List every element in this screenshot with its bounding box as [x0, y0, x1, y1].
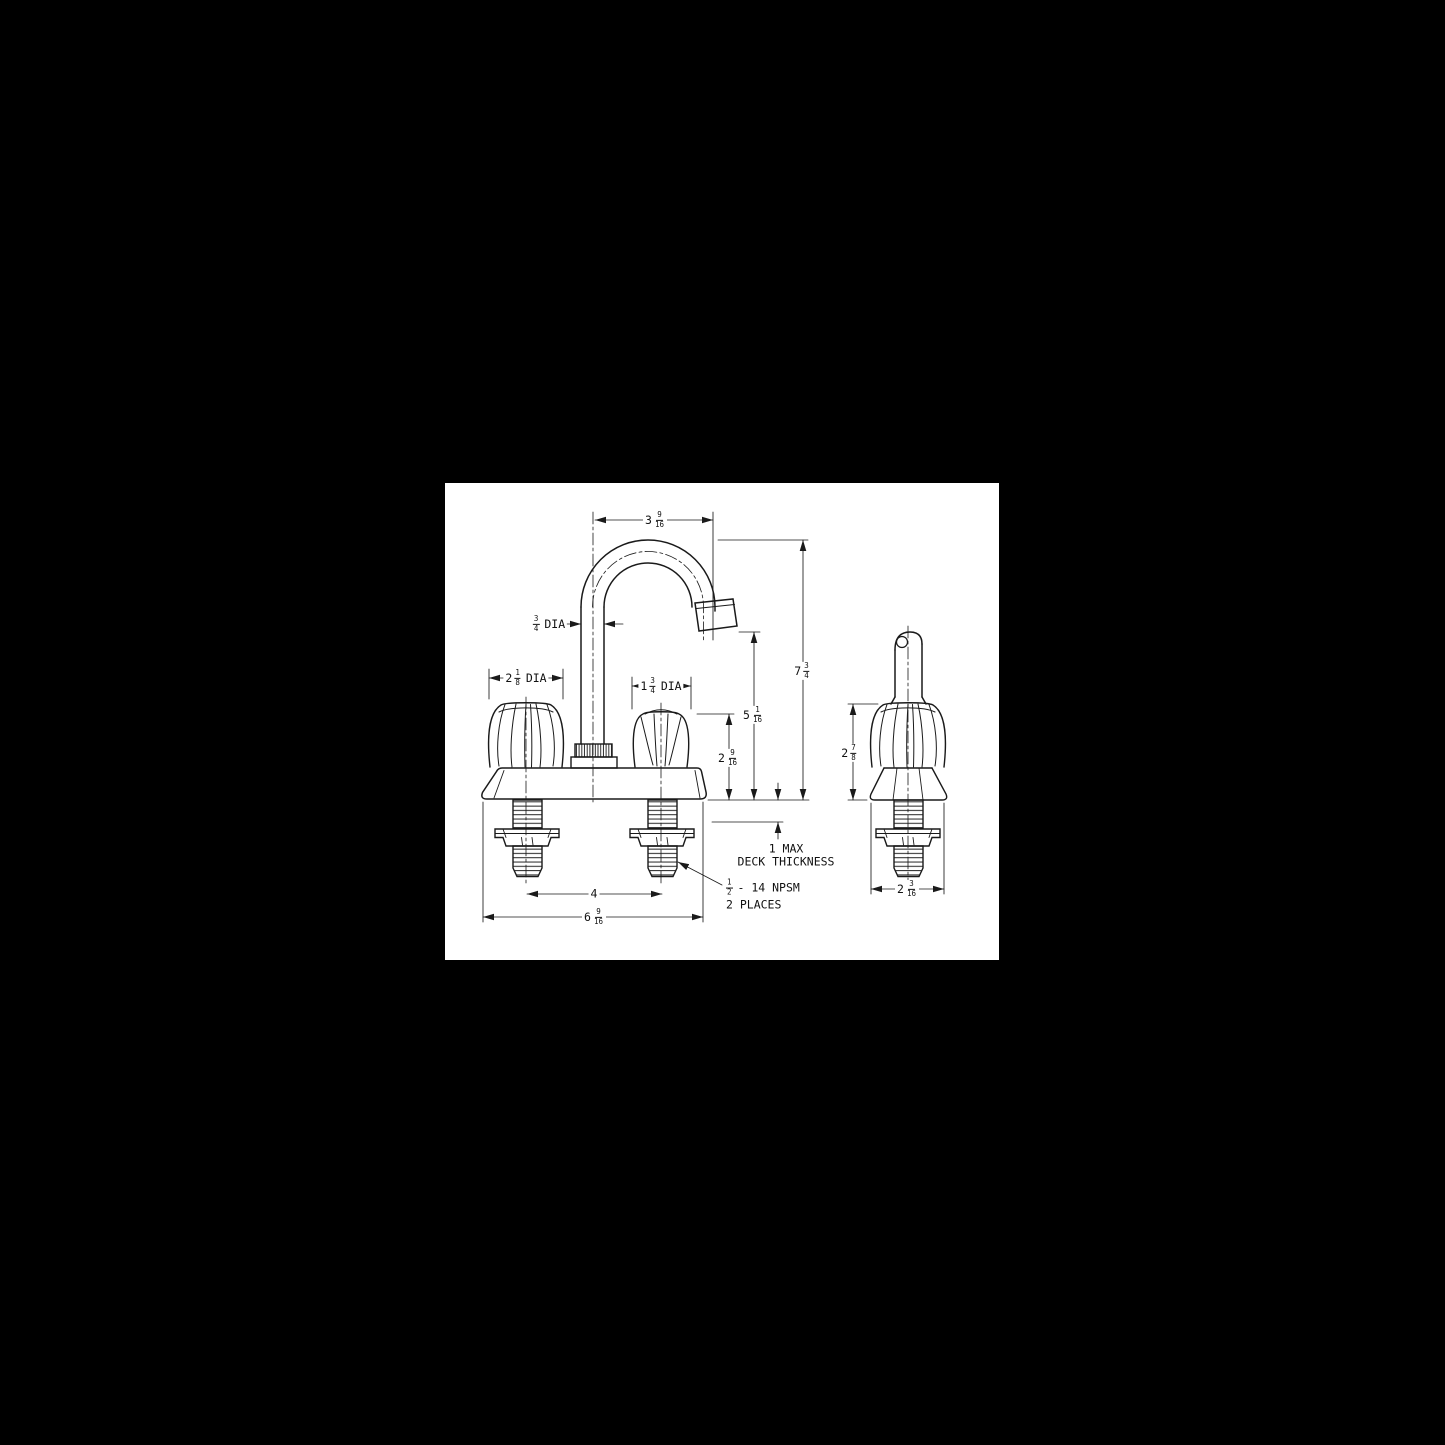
dim-fraction: 3 4	[649, 677, 656, 695]
dim-fraction: 1 8	[514, 669, 521, 687]
side-view	[870, 626, 946, 884]
dim-center-spacing: 4	[589, 888, 600, 901]
dim-fraction: 3 4	[533, 615, 540, 633]
dim-fraction: 3 4	[803, 662, 810, 680]
dim-spout-span: 3 9 16	[643, 511, 667, 529]
dim-fraction: 1 2	[726, 879, 733, 897]
dim-fraction: 1 16	[752, 706, 763, 724]
dim-side-handle-height: 2 7 8	[839, 744, 858, 762]
dim-spout-diameter: 3 4 DIA	[531, 615, 567, 633]
dim-whole: 3	[645, 514, 652, 527]
dim-fraction: 9 16	[654, 511, 665, 529]
screenshot-stage: 3 9 16 3 4 DIA 2 1 8 DIA 1 3 4	[0, 0, 1445, 1445]
gooseneck-spout	[581, 540, 737, 744]
spout-bore	[897, 637, 908, 648]
dim-deck-thickness: 1 MAX DECK THICKNESS	[736, 842, 837, 867]
dim-handle-height: 2 9 16	[716, 749, 740, 767]
dim-right-handle-diameter: 1 3 4 DIA	[638, 677, 683, 695]
side-spout-tube	[891, 632, 926, 704]
front-view	[482, 512, 737, 884]
left-shank	[495, 800, 559, 877]
drawing-sheet: 3 9 16 3 4 DIA 2 1 8 DIA 1 3 4	[445, 483, 999, 960]
dim-left-handle-diameter: 2 1 8 DIA	[503, 669, 548, 687]
knurled-bonnet-nut	[575, 744, 612, 757]
side-base-cone	[870, 768, 946, 800]
dim-side-base-width: 2 3 16	[895, 880, 919, 898]
deck-plate	[482, 768, 706, 799]
dim-fraction: 3 16	[906, 880, 917, 898]
spout-hub	[571, 757, 617, 768]
dim-fraction: 9 16	[593, 908, 604, 926]
dim-fraction: 9 16	[727, 749, 738, 767]
dim-overall-height: 7 3 4	[792, 662, 811, 680]
dim-overall-width: 6 9 16	[582, 908, 606, 926]
dim-shank-thread: 1 2 - 14 NPSM 2 PLACES	[724, 879, 802, 912]
dim-spout-outlet-height: 5 1 16	[741, 706, 765, 724]
spout-nozzle	[695, 599, 737, 631]
dim-fraction: 7 8	[850, 744, 857, 762]
